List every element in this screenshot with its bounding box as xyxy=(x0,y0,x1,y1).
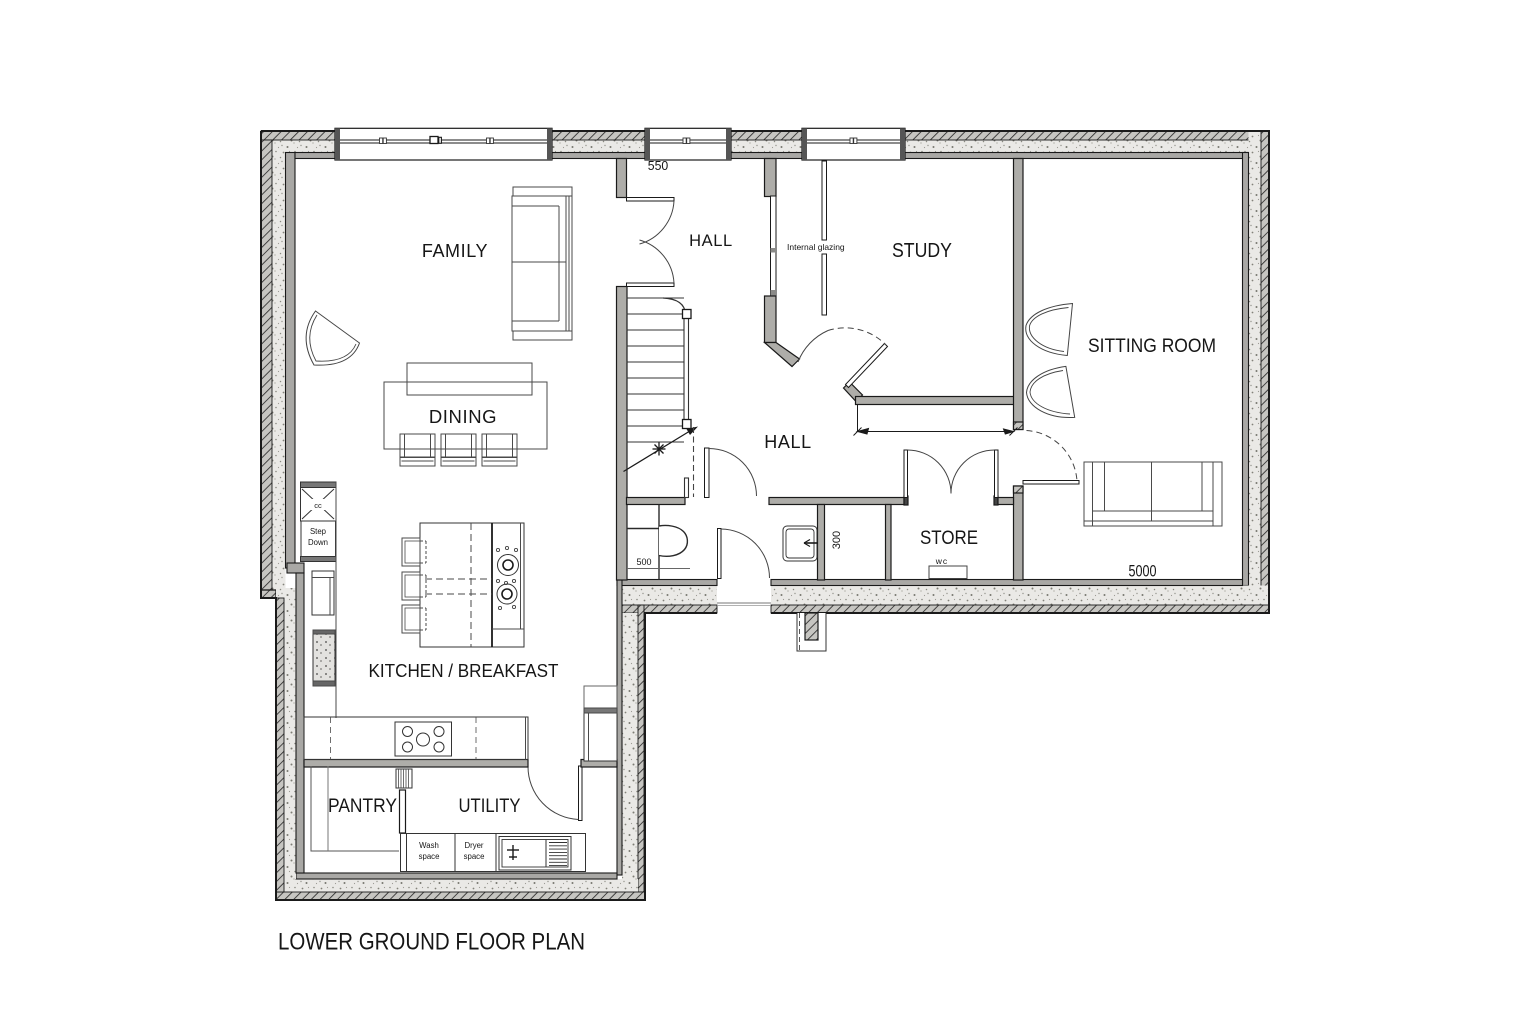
svg-text:Internal glazing: Internal glazing xyxy=(787,242,845,252)
svg-text:LOWER GROUND FLOOR PLAN: LOWER GROUND FLOOR PLAN xyxy=(278,929,585,956)
svg-text:HALL: HALL xyxy=(764,432,811,452)
svg-text:PANTRY: PANTRY xyxy=(328,795,397,817)
svg-text:wc: wc xyxy=(935,556,948,566)
svg-text:Dryer: Dryer xyxy=(464,841,483,850)
svg-text:500: 500 xyxy=(636,557,651,567)
svg-text:5000: 5000 xyxy=(1129,563,1157,581)
svg-text:DINING: DINING xyxy=(429,406,497,427)
svg-text:STORE: STORE xyxy=(920,528,978,549)
svg-text:space: space xyxy=(419,852,440,861)
svg-text:space: space xyxy=(464,852,485,861)
svg-text:Step: Step xyxy=(310,527,327,536)
svg-text:cc: cc xyxy=(314,501,322,510)
svg-text:KITCHEN / BREAKFAST: KITCHEN / BREAKFAST xyxy=(369,660,559,681)
svg-text:SITTING ROOM: SITTING ROOM xyxy=(1088,335,1216,357)
svg-text:300: 300 xyxy=(831,531,843,549)
svg-text:STUDY: STUDY xyxy=(892,240,952,262)
svg-text:HALL: HALL xyxy=(689,232,733,250)
svg-text:UTILITY: UTILITY xyxy=(459,795,521,817)
svg-text:550: 550 xyxy=(648,159,669,173)
svg-text:Down: Down xyxy=(308,538,328,547)
svg-text:Wash: Wash xyxy=(419,841,439,850)
svg-text:FAMILY: FAMILY xyxy=(422,241,488,261)
